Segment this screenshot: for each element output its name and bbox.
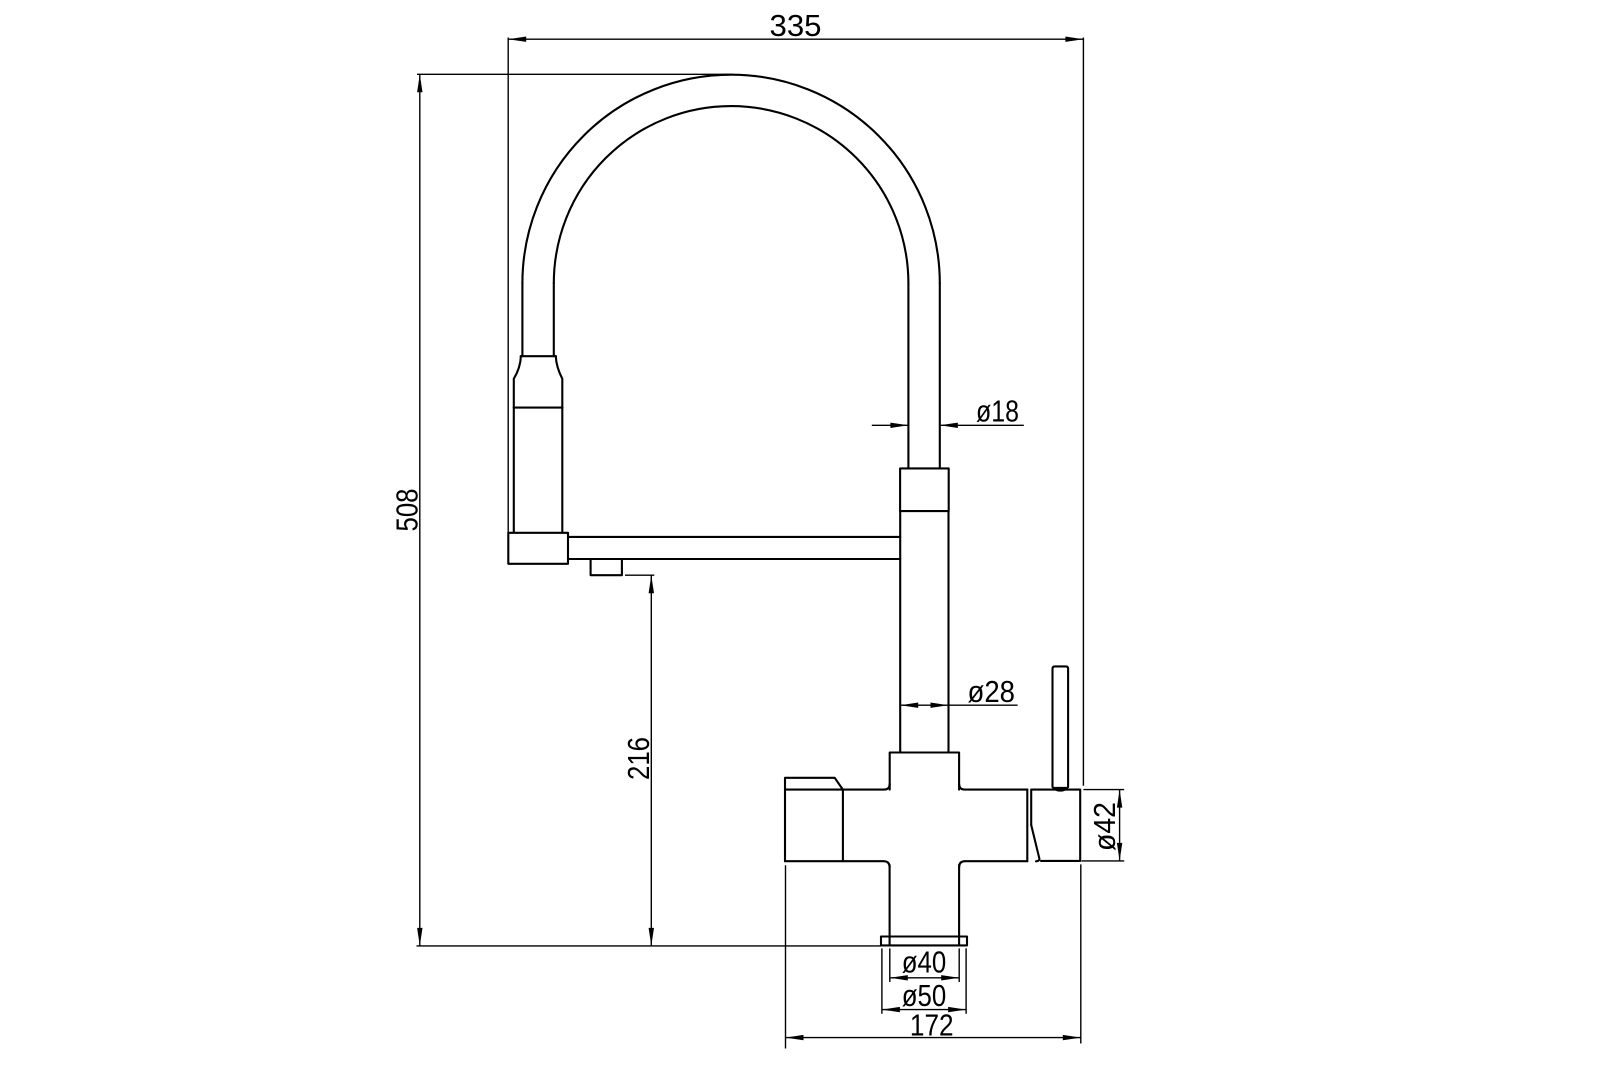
svg-text:335: 335 bbox=[770, 8, 822, 43]
svg-text:508: 508 bbox=[389, 489, 424, 532]
svg-text:ø40: ø40 bbox=[902, 944, 947, 979]
svg-text:ø28: ø28 bbox=[968, 674, 1016, 709]
svg-text:216: 216 bbox=[621, 737, 656, 780]
svg-text:172: 172 bbox=[910, 1008, 954, 1043]
svg-text:ø42: ø42 bbox=[1087, 802, 1122, 851]
svg-text:ø18: ø18 bbox=[976, 394, 1019, 429]
